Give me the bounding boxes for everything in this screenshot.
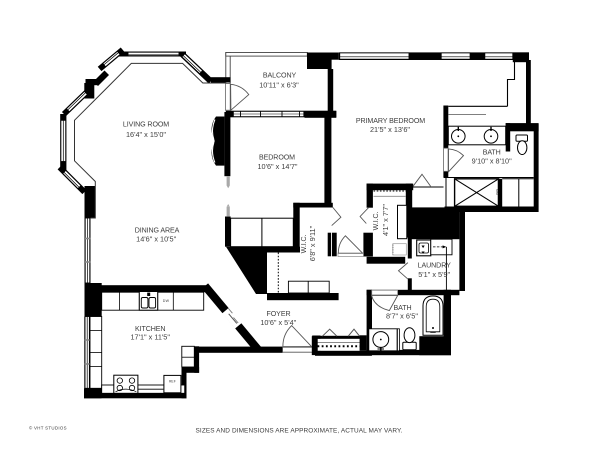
svg-text:5'1" x 5'9": 5'1" x 5'9" [418, 270, 450, 279]
svg-text:W.I.C.: W.I.C. [372, 212, 380, 231]
svg-text:21'5" x 13'6": 21'5" x 13'6" [370, 125, 410, 134]
svg-text:14'6" x 10'5": 14'6" x 10'5" [136, 235, 176, 244]
svg-text:LIVING ROOM: LIVING ROOM [123, 120, 169, 128]
svg-text:© VHT STUDIOS: © VHT STUDIOS [29, 426, 67, 431]
svg-text:PRIMARY BEDROOM: PRIMARY BEDROOM [356, 117, 425, 125]
svg-text:DW: DW [163, 299, 170, 303]
svg-text:REF: REF [169, 379, 176, 383]
svg-text:W.I.C.: W.I.C. [300, 235, 308, 254]
svg-text:SIZES AND DIMENSIONS ARE APPRO: SIZES AND DIMENSIONS ARE APPROXIMATE, AC… [196, 428, 403, 435]
svg-text:10'6" x 14'7": 10'6" x 14'7" [257, 162, 297, 171]
svg-text:8'7" x 6'5": 8'7" x 6'5" [386, 311, 418, 320]
svg-text:9'10" x 8'10": 9'10" x 8'10" [472, 156, 512, 165]
svg-text:10'11" x 6'3": 10'11" x 6'3" [259, 81, 299, 90]
svg-text:4'1" x 7'7": 4'1" x 7'7" [381, 204, 390, 236]
svg-text:10'6" x 5'4": 10'6" x 5'4" [260, 318, 296, 327]
svg-text:LAUNDRY: LAUNDRY [418, 262, 451, 270]
svg-text:6'8" x 9'11": 6'8" x 9'11" [308, 225, 317, 261]
svg-text:BEDROOM: BEDROOM [259, 153, 295, 161]
svg-text:BALCONY: BALCONY [263, 71, 297, 79]
svg-text:FOYER: FOYER [267, 310, 291, 318]
svg-text:16'4" x 15'0": 16'4" x 15'0" [126, 130, 166, 139]
svg-text:17'1" x 11'5": 17'1" x 11'5" [130, 333, 170, 342]
svg-text:DINING AREA: DINING AREA [135, 226, 180, 234]
svg-text:BATH: BATH [483, 148, 501, 156]
